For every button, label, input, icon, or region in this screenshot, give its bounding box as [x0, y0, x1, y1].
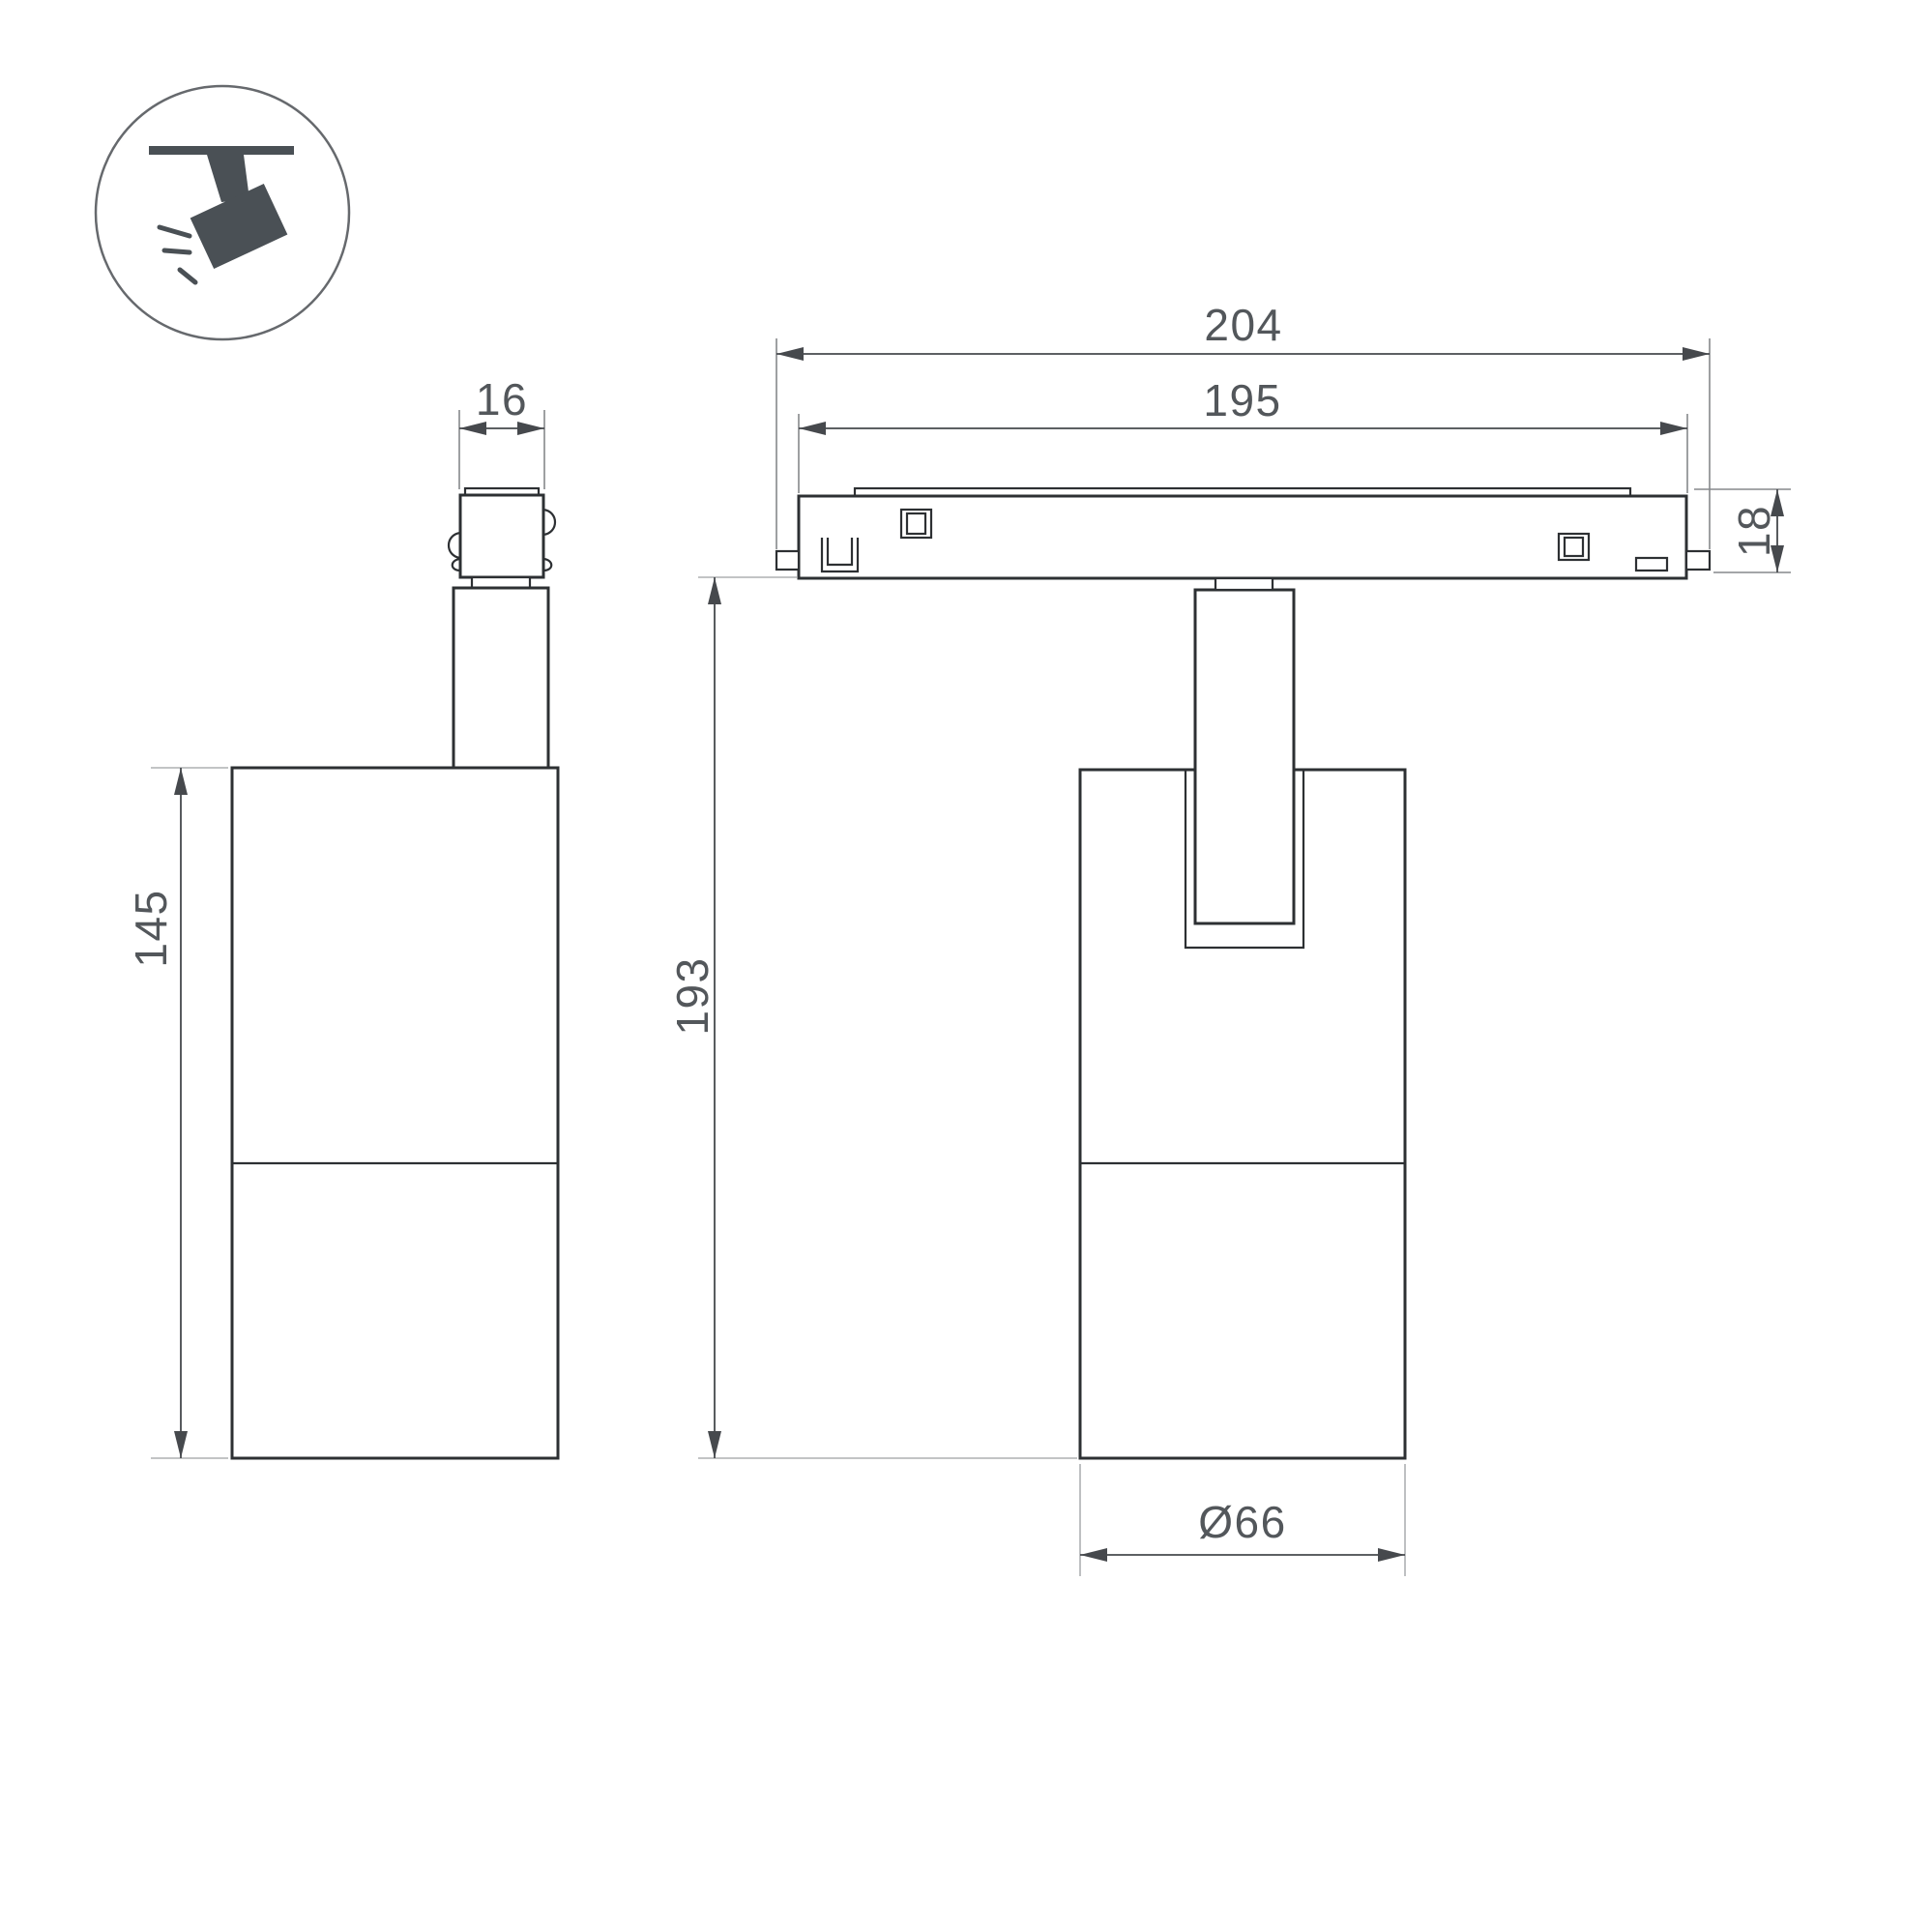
- front-view: [776, 488, 1710, 1458]
- stem-side: [454, 588, 548, 768]
- track-end-clip-right: [1686, 551, 1710, 570]
- stem-front: [1195, 590, 1294, 923]
- dim-label-track-inner: 195: [1203, 375, 1281, 425]
- spotlight-icon: [96, 86, 349, 339]
- arrowhead: [1660, 422, 1687, 435]
- dim-label-body-diameter: Ø66: [1198, 1497, 1286, 1547]
- arrowhead: [799, 422, 826, 435]
- track-end-clip-left: [776, 551, 799, 570]
- arrowhead: [708, 577, 721, 604]
- light-ray-icon: [164, 250, 190, 252]
- adapter-spring-clip-left: [449, 533, 460, 558]
- ceiling-bar-icon: [149, 146, 294, 155]
- dim-label-body-height: 145: [126, 889, 176, 967]
- dim-label-track-outer: 204: [1204, 300, 1282, 350]
- light-ray-icon: [160, 227, 190, 236]
- adapter-block: [460, 495, 543, 577]
- dim-label-track-height: 18: [1729, 505, 1779, 557]
- dim-label-adapter-width: 16: [476, 374, 528, 424]
- arrowhead: [1683, 347, 1710, 361]
- light-ray-icon: [180, 270, 195, 282]
- lamp-body-side: [232, 768, 558, 1458]
- lamp-head-icon: [190, 184, 288, 269]
- side-view: [232, 488, 558, 1458]
- arrowhead: [776, 347, 804, 361]
- arrowhead: [708, 1431, 721, 1458]
- dimension-drawing-svg: 16 145 204: [0, 0, 1932, 1932]
- adapter-spring-clip-right: [543, 510, 555, 535]
- arrowhead: [1080, 1548, 1107, 1562]
- stem-neck-side: [472, 577, 530, 588]
- arrowhead: [174, 768, 188, 795]
- arrowhead: [1378, 1548, 1405, 1562]
- drawing-canvas: 16 145 204: [0, 0, 1932, 1932]
- stem-neck-front: [1215, 578, 1273, 590]
- dim-label-overall-height: 193: [667, 956, 717, 1035]
- arrowhead: [174, 1431, 188, 1458]
